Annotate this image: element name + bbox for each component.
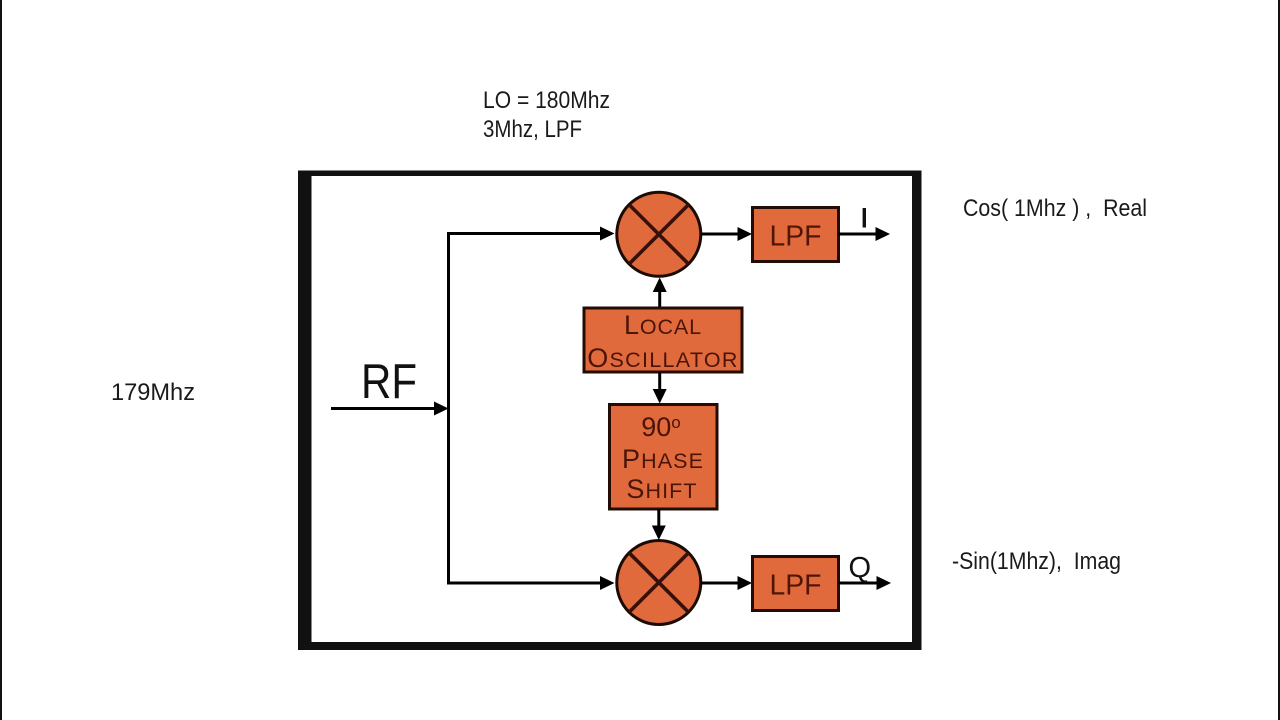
svg-text:Cos( 1Mhz ) , Real: Cos( 1Mhz ) , Real <box>963 195 1147 222</box>
svg-text:Q: Q <box>849 552 872 584</box>
svg-text:LPF: LPF <box>770 570 822 602</box>
svg-text:OSCILLATOR: OSCILLATOR <box>587 343 739 373</box>
svg-text:RF: RF <box>361 355 417 409</box>
svg-text:3Mhz, LPF: 3Mhz, LPF <box>483 116 582 143</box>
svg-text:179Mhz: 179Mhz <box>111 379 195 406</box>
svg-text:LO = 180Mhz: LO = 180Mhz <box>483 87 610 114</box>
svg-text:SHIFT: SHIFT <box>626 474 697 504</box>
svg-text:LPF: LPF <box>770 221 822 253</box>
svg-text:LOCAL: LOCAL <box>624 310 702 340</box>
svg-text:PHASE: PHASE <box>622 444 704 474</box>
svg-text:-Sin(1Mhz), Imag: -Sin(1Mhz), Imag <box>952 548 1121 575</box>
